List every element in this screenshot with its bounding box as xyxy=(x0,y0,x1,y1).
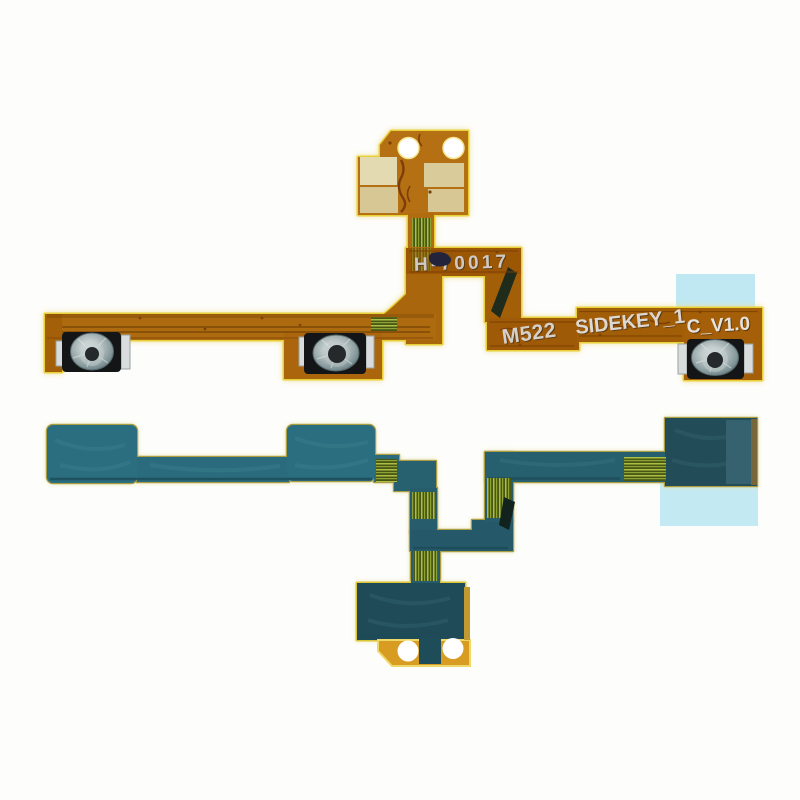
svg-text:C_V1.0: C_V1.0 xyxy=(686,314,750,338)
